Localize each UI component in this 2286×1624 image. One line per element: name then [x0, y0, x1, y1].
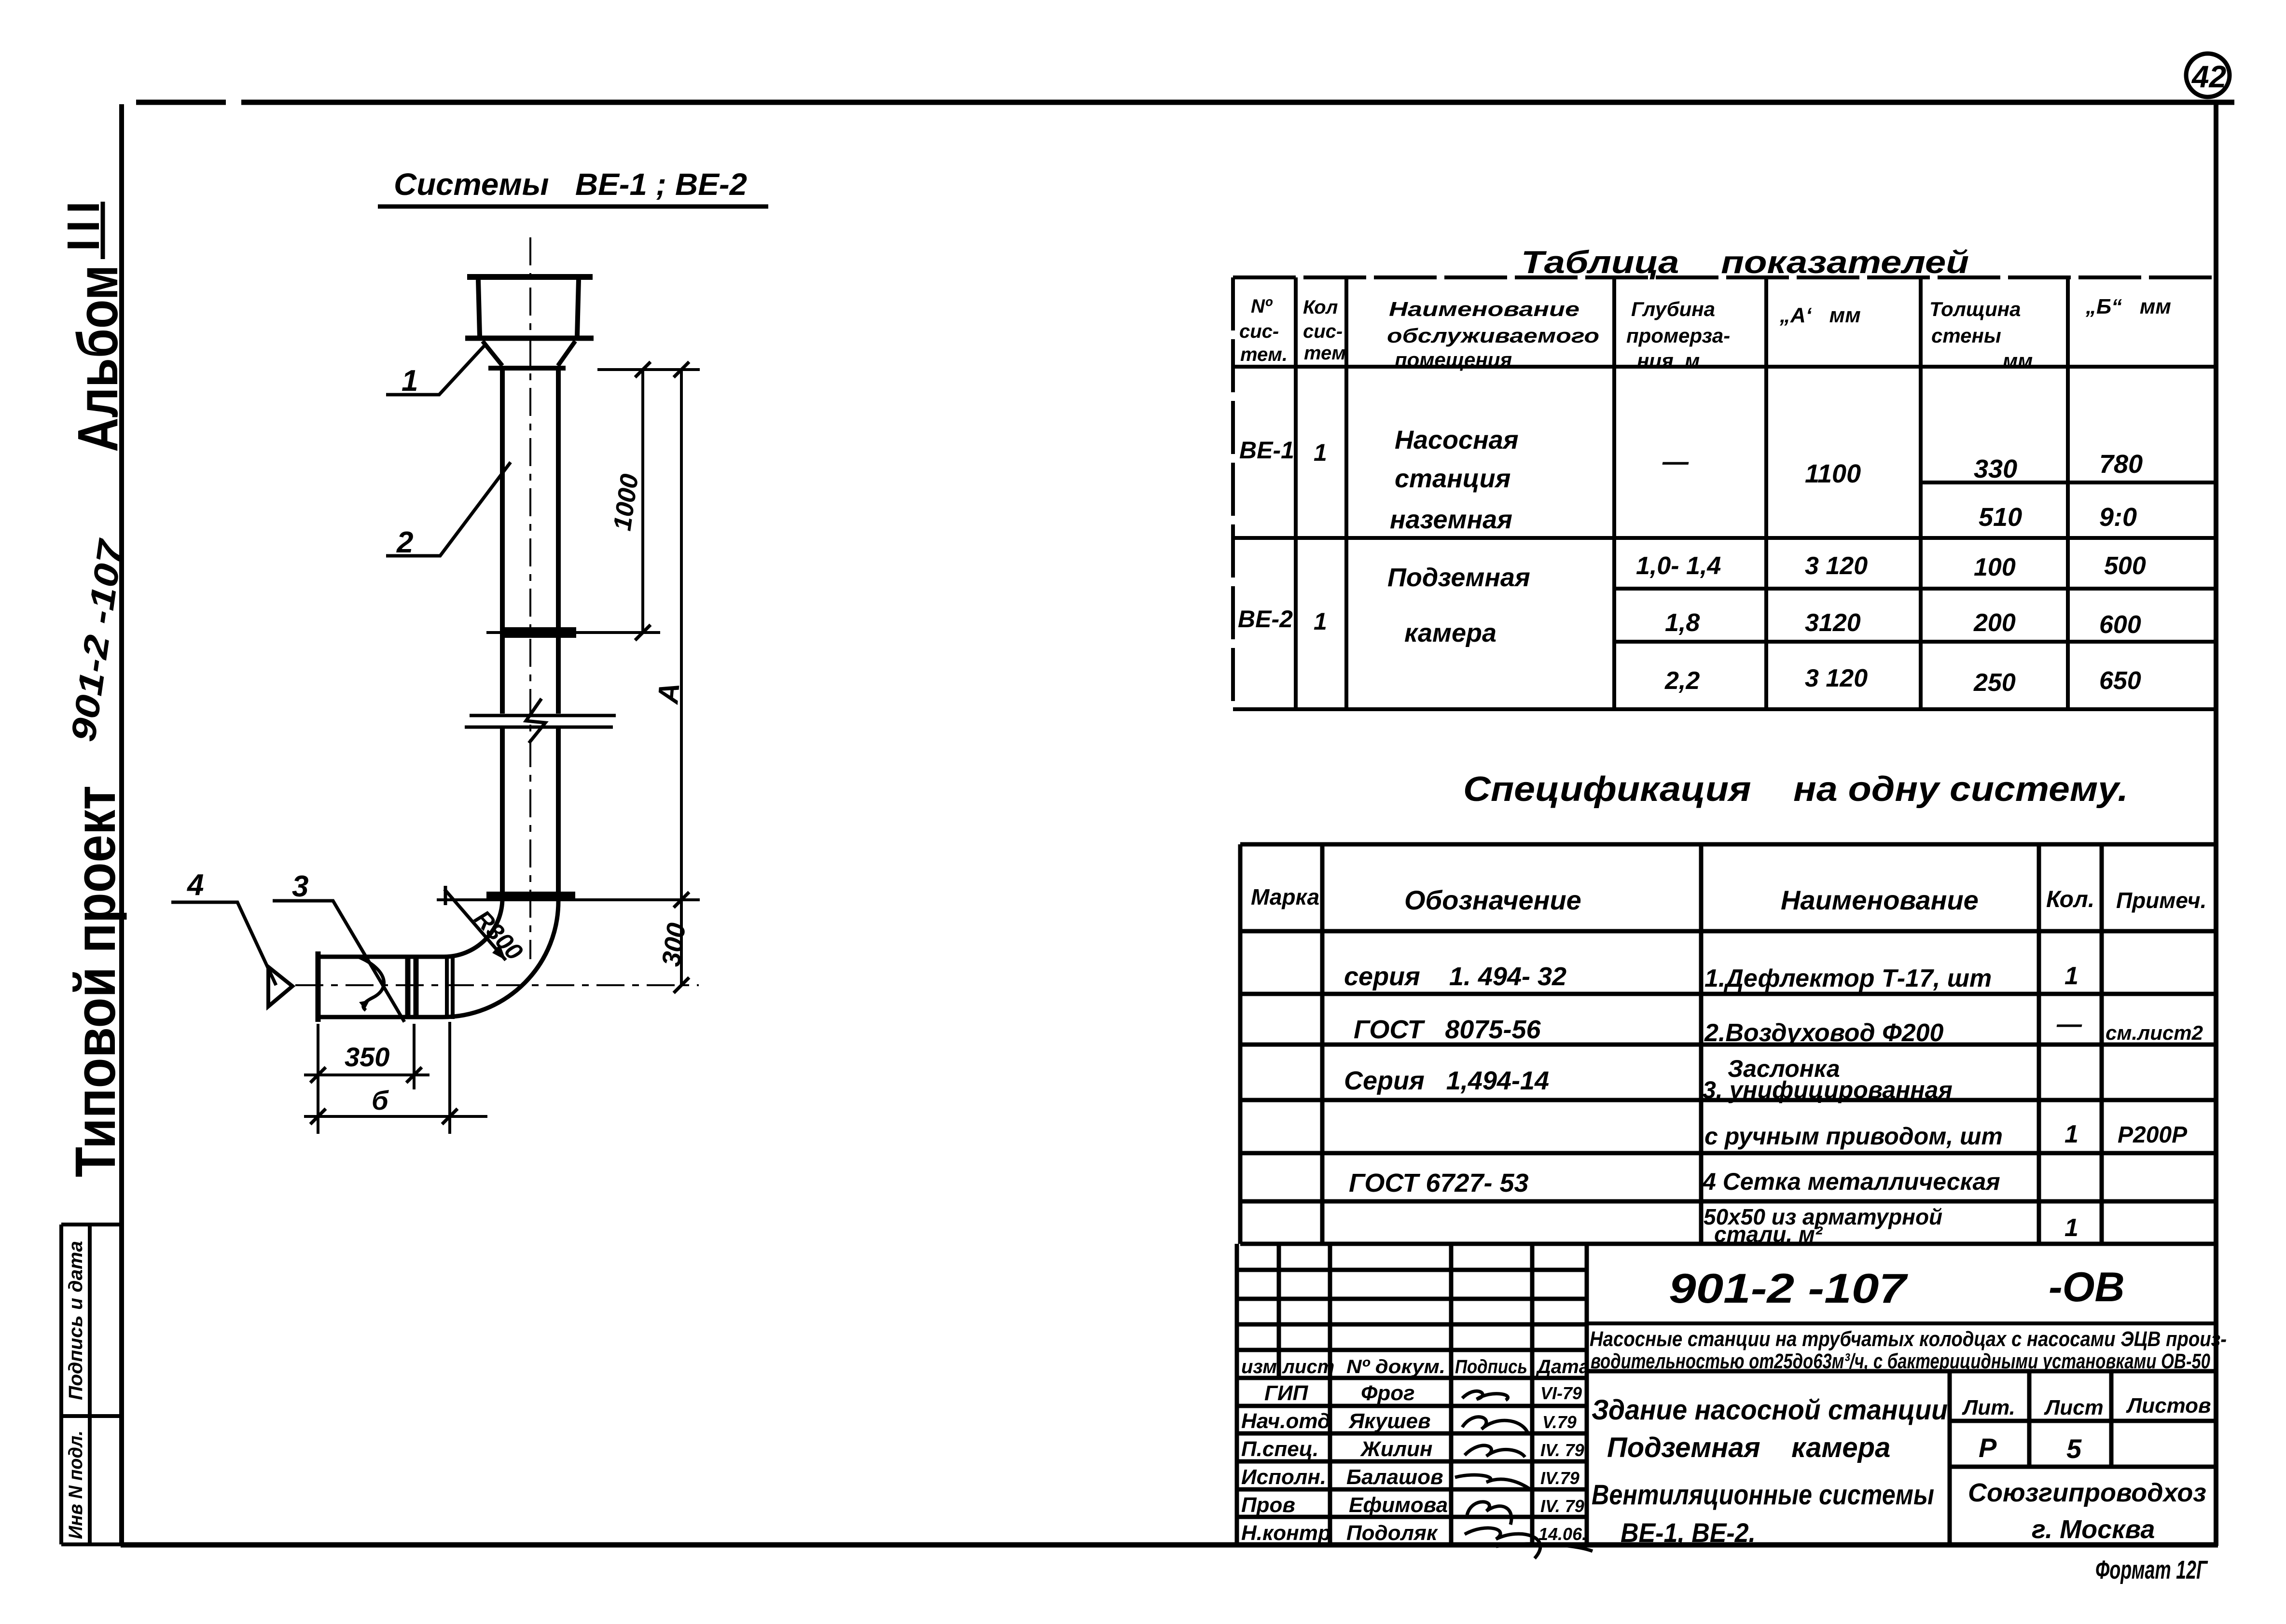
svg-text:Nº докум.: Nº докум. — [1346, 1356, 1445, 1377]
svg-text:обслуживаемого: обслуживаемого — [1387, 324, 1599, 347]
svg-text:сис-: сис- — [1303, 321, 1343, 342]
svg-text:см.лист2: см.лист2 — [2106, 1021, 2203, 1044]
svg-text:ВЕ-2: ВЕ-2 — [1238, 606, 1293, 633]
svg-text:1: 1 — [402, 364, 418, 398]
svg-text:Толщина: Толщина — [1929, 298, 2021, 320]
svg-text:600: 600 — [2099, 611, 2141, 639]
svg-text:ГОСТ 6727- 53: ГОСТ 6727- 53 — [1349, 1169, 1529, 1197]
svg-text:510: 510 — [1979, 503, 2022, 532]
svg-text:изм.: изм. — [1241, 1356, 1282, 1377]
svg-text:1: 1 — [2064, 1120, 2078, 1148]
svg-text:42: 42 — [2191, 59, 2226, 94]
svg-text:1: 1 — [2064, 1214, 2078, 1242]
svg-text:500: 500 — [2104, 552, 2146, 580]
svg-text:б: б — [372, 1085, 389, 1115]
svg-text:Примеч.: Примеч. — [2116, 888, 2206, 913]
svg-text:3: 3 — [292, 870, 308, 903]
svg-text:ния м: ния м — [1637, 349, 1700, 372]
svg-text:стены: стены — [1931, 324, 2001, 347]
svg-text:IV. 79: IV. 79 — [1540, 1496, 1584, 1516]
svg-text:4: 4 — [186, 868, 204, 902]
svg-text:Исполн.: Исполн. — [1241, 1465, 1326, 1489]
svg-text:Формат 12Г: Формат 12Г — [2095, 1555, 2208, 1584]
svg-text:станция: станция — [1395, 464, 1510, 493]
svg-text:1: 1 — [1314, 608, 1327, 635]
svg-text:Нач.отд: Нач.отд — [1241, 1409, 1330, 1433]
svg-text:лист: лист — [1282, 1356, 1334, 1377]
svg-text:780: 780 — [2099, 450, 2143, 479]
svg-text:1,0- 1,4: 1,0- 1,4 — [1636, 552, 1721, 580]
svg-text:ВЕ-1: ВЕ-1 — [1239, 437, 1294, 464]
svg-text:Ефимова: Ефимова — [1349, 1493, 1448, 1517]
svg-text:А: А — [651, 681, 686, 706]
svg-text:Системы ВЕ-1 ; ВЕ-2: Системы ВЕ-1 ; ВЕ-2 — [394, 167, 747, 202]
svg-text:650: 650 — [2099, 667, 2141, 695]
svg-text:Подземная камера: Подземная камера — [1607, 1432, 1890, 1463]
svg-text:Якушев: Якушев — [1348, 1409, 1431, 1433]
svg-text:Лит.: Лит. — [1962, 1396, 2015, 1419]
svg-text:9:0: 9:0 — [2099, 503, 2137, 532]
svg-text:1100: 1100 — [1805, 459, 1861, 488]
svg-text:Дата: Дата — [1536, 1356, 1590, 1377]
svg-text:1000: 1000 — [608, 472, 644, 533]
svg-text:1: 1 — [1314, 439, 1327, 466]
svg-text:1.Дефлектор Т-17, шт: 1.Дефлектор Т-17, шт — [1704, 964, 1992, 992]
svg-text:ВЕ-1, ВЕ-2.: ВЕ-1, ВЕ-2. — [1621, 1517, 1756, 1548]
svg-text:14.06.: 14.06. — [1538, 1524, 1587, 1544]
svg-text:Спецификация на одну систем: Спецификация на одну систему. — [1463, 770, 2128, 809]
svg-text:200: 200 — [1973, 609, 2016, 637]
svg-text:„А‘ мм: „А‘ мм — [1779, 303, 1861, 327]
svg-text:300: 300 — [656, 921, 691, 968]
svg-text:Вентиляционные системы: Вентиляционные системы — [1592, 1479, 1934, 1511]
svg-text:350: 350 — [345, 1042, 389, 1072]
svg-text:Р200Р: Р200Р — [2118, 1122, 2188, 1148]
svg-text:901-2 -107: 901-2 -107 — [1669, 1266, 1909, 1312]
svg-text:Типовой проект: Типовой проект — [64, 785, 127, 1177]
svg-text:Подпись: Подпись — [1455, 1356, 1527, 1377]
svg-text:IV.79: IV.79 — [1540, 1468, 1579, 1488]
svg-text:VI-79: VI-79 — [1540, 1383, 1582, 1403]
svg-text:Кол.: Кол. — [2046, 887, 2094, 912]
svg-text:1: 1 — [2064, 962, 2078, 990]
svg-text:IV. 79: IV. 79 — [1540, 1440, 1584, 1460]
svg-text:Лист: Лист — [2044, 1396, 2104, 1419]
svg-text:„Б“ мм: „Б“ мм — [2085, 295, 2171, 318]
svg-text:Насосные станции на трубчатых: Насосные станции на трубчатых колодцах с… — [1590, 1327, 2227, 1351]
svg-text:тем.: тем. — [1240, 344, 1288, 365]
svg-text:ГИП: ГИП — [1264, 1381, 1309, 1405]
svg-text:Таблица показателей: Таблица показателей — [1521, 244, 1969, 280]
svg-text:Марка: Марка — [1251, 884, 1319, 909]
svg-text:Наименование: Наименование — [1389, 298, 1579, 320]
svg-text:Фрог: Фрог — [1361, 1381, 1415, 1405]
svg-text:3 120: 3 120 — [1805, 552, 1868, 580]
svg-text:Р: Р — [1979, 1432, 1997, 1463]
svg-text:Инв N подл.: Инв N подл. — [65, 1431, 86, 1539]
svg-text:Кол: Кол — [1303, 297, 1338, 318]
svg-text:Насосная: Насосная — [1395, 426, 1519, 454]
svg-text:Серия 1,494-14: Серия 1,494-14 — [1344, 1066, 1549, 1095]
svg-text:П.спец.: П.спец. — [1241, 1437, 1318, 1461]
svg-text:250: 250 — [1973, 669, 2016, 697]
svg-text:Жилин: Жилин — [1360, 1437, 1433, 1461]
svg-text:мм: мм — [2003, 349, 2033, 372]
svg-text:2.Воздуховод Ф200: 2.Воздуховод Ф200 — [1704, 1019, 1944, 1047]
svg-text:-ОВ: -ОВ — [2049, 1264, 2125, 1310]
svg-text:Пров: Пров — [1241, 1493, 1295, 1517]
svg-text:3. унифицированная: 3. унифицированная — [1703, 1076, 1953, 1103]
svg-text:Подоляк: Подоляк — [1346, 1521, 1439, 1545]
svg-text:Альбом: Альбом — [66, 265, 130, 452]
svg-text:100: 100 — [1974, 553, 2016, 581]
svg-text:ГОСТ 8075-56: ГОСТ 8075-56 — [1354, 1015, 1541, 1044]
svg-text:г. Москва: г. Москва — [2032, 1515, 2155, 1544]
svg-text:330: 330 — [1974, 454, 2017, 483]
svg-text:Nº: Nº — [1251, 296, 1273, 317]
svg-text:4 Сетка металлическая: 4 Сетка металлическая — [1702, 1168, 2000, 1195]
svg-text:V.79: V.79 — [1542, 1412, 1577, 1432]
svg-text:Обозначение: Обозначение — [1404, 885, 1581, 915]
svg-text:наземная: наземная — [1390, 505, 1512, 534]
svg-text:2,2: 2,2 — [1664, 667, 1700, 695]
svg-text:Н.контр: Н.контр — [1241, 1521, 1331, 1545]
svg-text:стали, м²: стали, м² — [1714, 1222, 1823, 1247]
svg-text:камера: камера — [1404, 619, 1496, 647]
svg-text:—: — — [1662, 447, 1689, 476]
svg-text:1,8: 1,8 — [1665, 609, 1700, 637]
svg-text:с ручным приводом, шт: с ручным приводом, шт — [1704, 1123, 2003, 1150]
svg-text:3120: 3120 — [1805, 609, 1861, 637]
svg-text:Подземная: Подземная — [1387, 563, 1530, 592]
svg-text:Союзгипроводхоз: Союзгипроводхоз — [1968, 1478, 2206, 1507]
svg-text:Балашов: Балашов — [1346, 1465, 1443, 1489]
svg-text:5: 5 — [2066, 1433, 2082, 1464]
svg-text:Глубина: Глубина — [1631, 298, 1715, 320]
svg-text:промерза-: промерза- — [1626, 324, 1730, 347]
svg-text:сис-: сис- — [1239, 321, 1279, 342]
svg-text:помещения: помещения — [1395, 348, 1512, 371]
svg-text:Подпись и дата: Подпись и дата — [65, 1241, 86, 1400]
svg-text:Наименование: Наименование — [1781, 885, 1979, 915]
svg-text:тем: тем — [1304, 343, 1346, 364]
svg-text:серия 1. 494- 32: серия 1. 494- 32 — [1344, 962, 1566, 991]
svg-text:Листов: Листов — [2126, 1394, 2211, 1418]
svg-text:3 120: 3 120 — [1805, 664, 1868, 692]
svg-text:Здание насосной станции: Здание насосной станции — [1592, 1394, 1948, 1426]
svg-text:—: — — [2056, 1010, 2082, 1038]
